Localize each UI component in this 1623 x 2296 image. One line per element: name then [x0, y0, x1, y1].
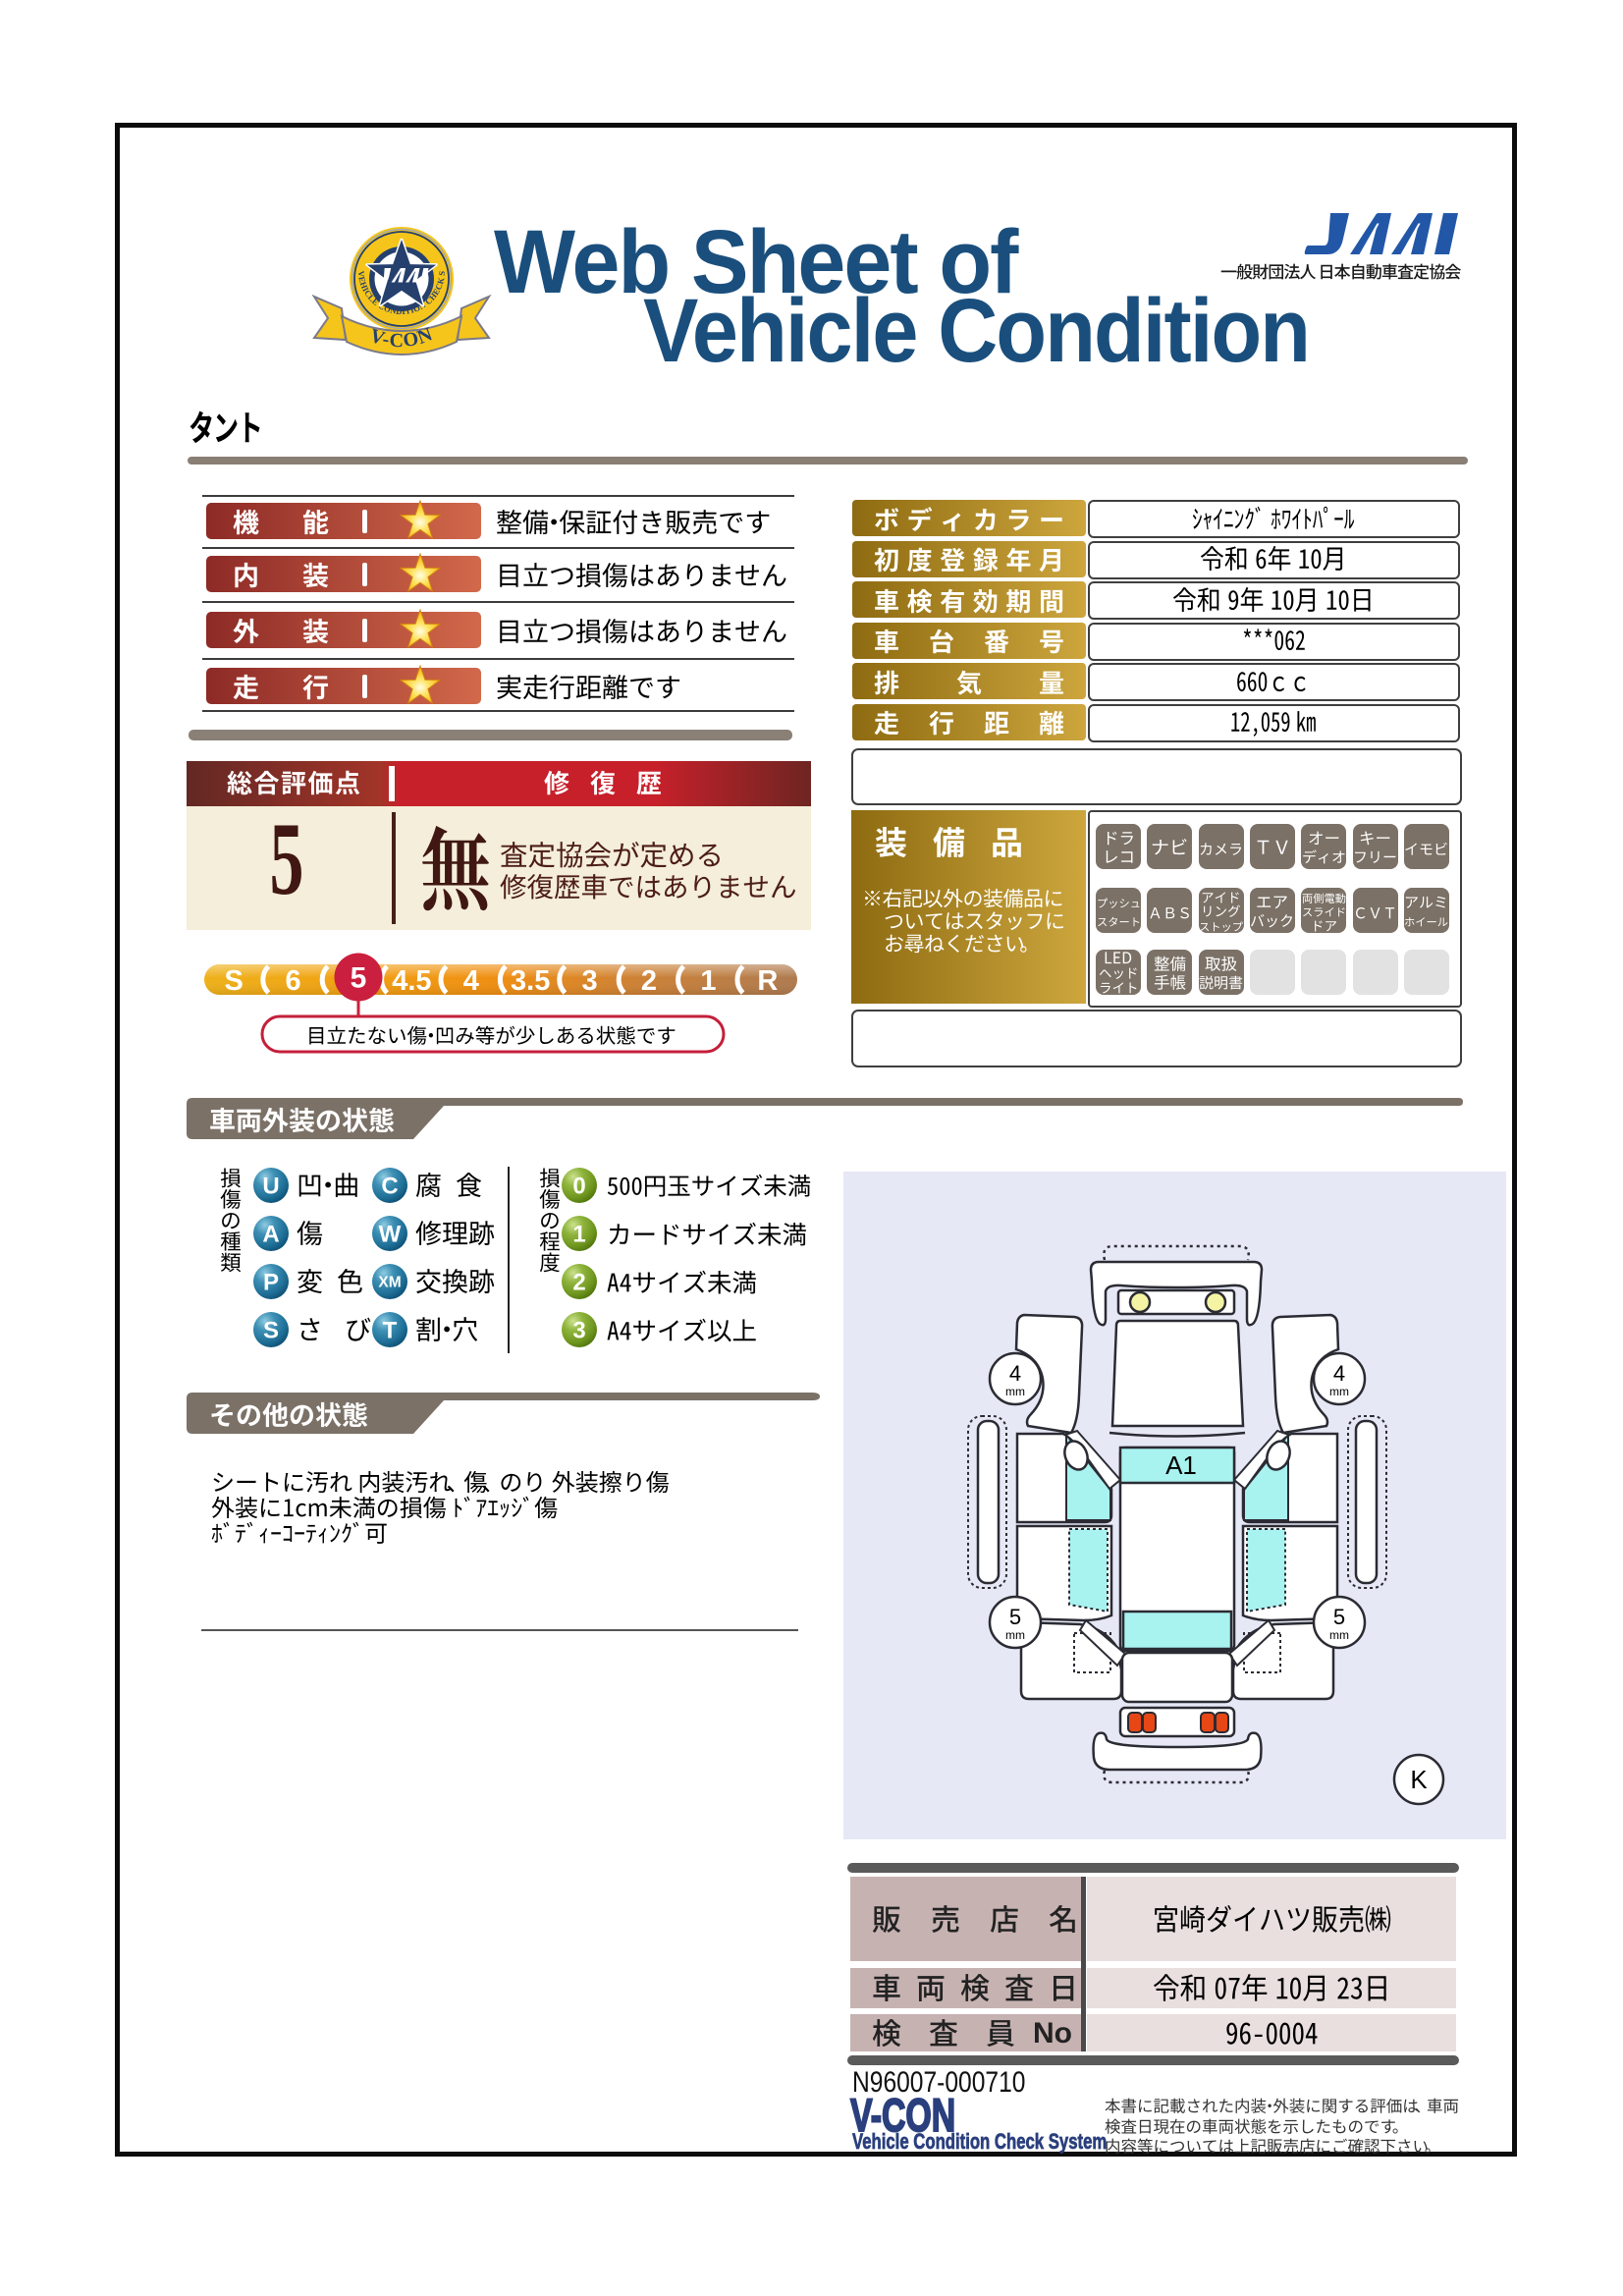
svg-text:A: A — [262, 1222, 279, 1248]
svg-text:3: 3 — [582, 965, 598, 997]
svg-text:K: K — [1410, 1765, 1428, 1794]
svg-text:mm: mm — [1005, 1628, 1025, 1642]
svg-text:4: 4 — [1009, 1361, 1021, 1386]
svg-text:S: S — [263, 1318, 279, 1344]
svg-text:0: 0 — [572, 1174, 585, 1200]
svg-text:4.5: 4.5 — [392, 965, 431, 997]
svg-text:2: 2 — [572, 1270, 585, 1296]
svg-text:3.5: 3.5 — [511, 965, 550, 997]
svg-text:A1: A1 — [1165, 1450, 1197, 1480]
svg-text:mm: mm — [1329, 1628, 1349, 1642]
svg-text:2: 2 — [641, 965, 657, 997]
svg-text:1: 1 — [572, 1222, 585, 1248]
svg-text:R: R — [757, 965, 778, 997]
svg-text:4: 4 — [1333, 1361, 1345, 1386]
svg-text:3: 3 — [572, 1318, 585, 1344]
svg-text:5: 5 — [1009, 1605, 1021, 1629]
svg-text:S: S — [225, 965, 243, 997]
svg-text:6: 6 — [286, 965, 301, 997]
svg-text:5: 5 — [1333, 1605, 1345, 1629]
svg-text:U: U — [262, 1174, 279, 1200]
svg-text:4: 4 — [463, 965, 479, 997]
svg-text:5: 5 — [351, 962, 367, 995]
svg-text:T: T — [383, 1318, 398, 1344]
svg-text:W: W — [379, 1222, 402, 1248]
svg-text:P: P — [263, 1270, 279, 1296]
svg-text:C: C — [381, 1174, 398, 1200]
svg-text:XM: XM — [378, 1275, 401, 1291]
svg-text:mm: mm — [1005, 1385, 1025, 1398]
svg-text:mm: mm — [1329, 1385, 1349, 1398]
svg-text:1: 1 — [700, 965, 716, 997]
